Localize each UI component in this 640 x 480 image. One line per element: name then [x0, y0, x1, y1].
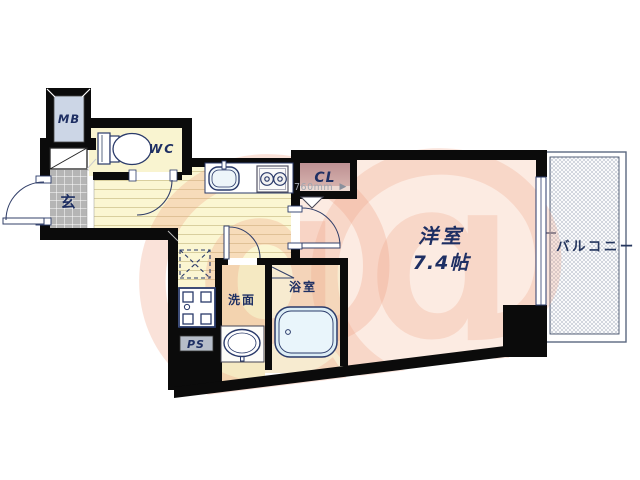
wall	[536, 150, 547, 177]
mb-label: MB	[58, 112, 80, 126]
main-room-door-opening	[291, 212, 300, 243]
wc-door-opening	[133, 172, 173, 180]
washroom-label: 洗面	[228, 292, 256, 307]
closet-arrow-icon: ▶	[340, 182, 347, 192]
balcony-label: バルコニー	[556, 239, 636, 255]
wall	[265, 258, 272, 370]
door-jamb	[129, 170, 136, 181]
wall	[84, 118, 192, 128]
washing-machine-pan-icon	[179, 288, 215, 327]
door-jamb	[288, 206, 302, 212]
floor-plan-drawing: @ @	[0, 0, 640, 480]
closet-width-dimension: 760mm	[294, 182, 333, 193]
wall	[215, 258, 222, 388]
stove-icon	[257, 166, 288, 192]
pipe-space-label: PS	[187, 338, 205, 351]
main-room-size: 7.4帖	[413, 252, 472, 274]
wall	[168, 240, 178, 390]
main-room-label: 洋室	[418, 224, 464, 248]
bathroom-label: 浴室	[289, 279, 317, 294]
door-jamb	[170, 170, 177, 181]
wall	[93, 172, 133, 180]
wall	[257, 258, 270, 265]
bathtub-icon	[275, 307, 337, 357]
toilet-icon	[98, 133, 151, 165]
wc-label: WC	[149, 141, 176, 156]
washroom-door-leaf	[224, 226, 229, 259]
door-jamb	[288, 243, 302, 249]
washbasin-icon	[221, 326, 264, 362]
wall	[503, 305, 547, 357]
entrance-label: 玄	[60, 193, 75, 211]
wall	[340, 258, 348, 366]
entrance-door-opening	[40, 182, 50, 219]
washroom-door-opening	[228, 258, 257, 265]
floor-plan-canvas: @ @	[0, 0, 640, 480]
wall	[265, 258, 348, 265]
main-room-door-leaf	[302, 243, 340, 248]
entrance-step	[87, 170, 94, 231]
wall	[40, 228, 178, 240]
entrance-door-leaf	[3, 218, 44, 224]
